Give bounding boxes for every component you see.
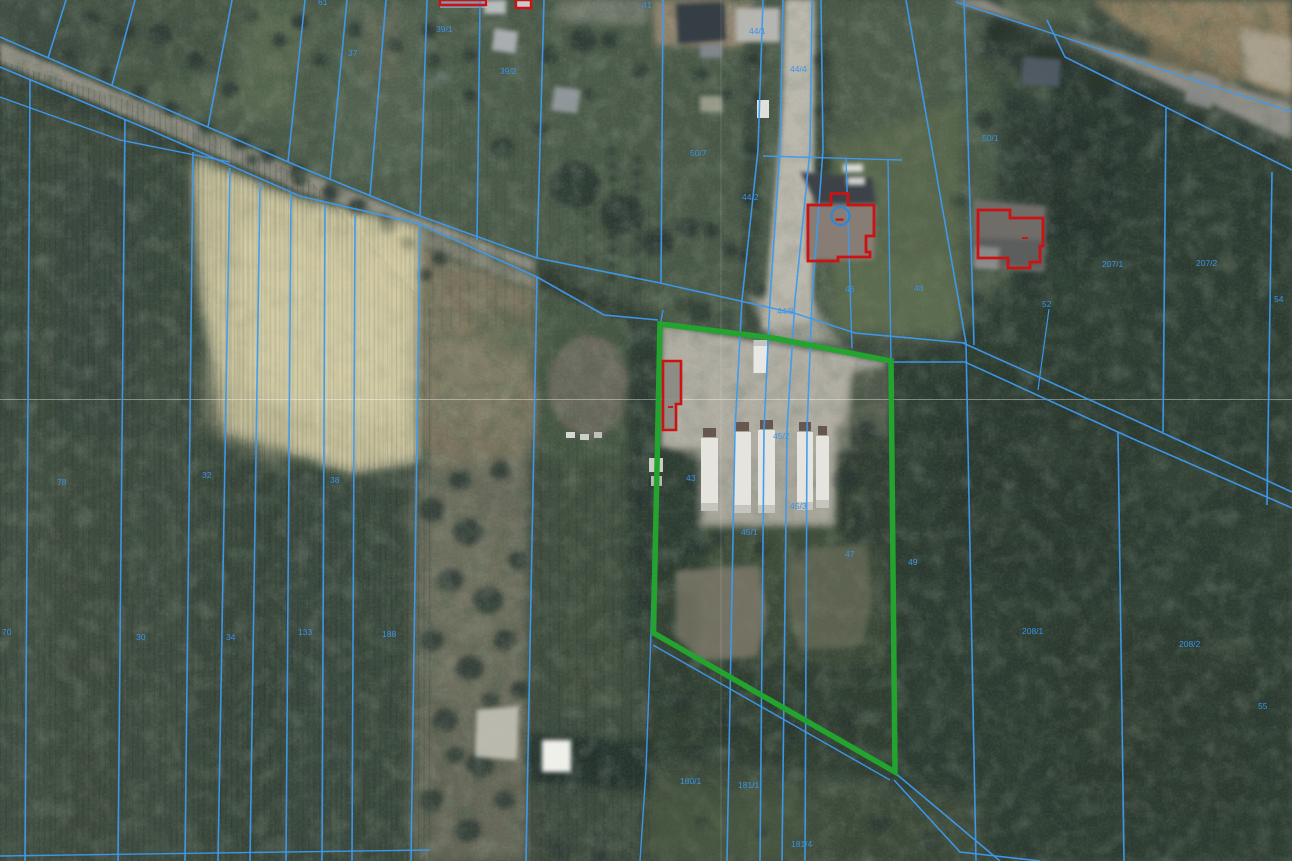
svg-text:78: 78 [57,477,67,487]
svg-text:44/1: 44/1 [749,26,766,36]
svg-text:133: 133 [298,627,312,637]
svg-text:61: 61 [318,0,328,7]
svg-text:208/1: 208/1 [1022,626,1044,636]
svg-text:207/1: 207/1 [1102,259,1124,269]
svg-text:180/1: 180/1 [680,776,702,786]
svg-text:207/2: 207/2 [1196,258,1218,268]
svg-text:44/4: 44/4 [790,64,807,74]
svg-text:45/1: 45/1 [741,527,758,537]
svg-text:44/2: 44/2 [742,192,759,202]
svg-text:47: 47 [845,549,855,559]
svg-text:38: 38 [330,475,340,485]
svg-text:41: 41 [642,0,652,10]
svg-text:50/7: 50/7 [690,148,707,158]
svg-text:45/3: 45/3 [790,501,807,511]
svg-text:188: 188 [382,629,396,639]
svg-text:34: 34 [226,632,236,642]
svg-text:208/2: 208/2 [1179,639,1201,649]
svg-text:44/8: 44/8 [777,306,794,316]
svg-text:55: 55 [1258,701,1268,711]
svg-text:181/4: 181/4 [791,839,813,849]
svg-text:49: 49 [908,557,918,567]
svg-text:39/1: 39/1 [436,24,453,34]
svg-text:70: 70 [2,627,12,637]
svg-text:39/2: 39/2 [500,66,517,76]
svg-text:45/2: 45/2 [773,431,790,441]
svg-text:32: 32 [202,470,212,480]
svg-text:48: 48 [914,283,924,293]
svg-text:50/1: 50/1 [982,133,999,143]
svg-text:46: 46 [845,284,855,294]
svg-text:43: 43 [686,473,696,483]
svg-text:30: 30 [136,632,146,642]
svg-text:52: 52 [1042,299,1052,309]
svg-text:54: 54 [1274,294,1284,304]
svg-text:181/1: 181/1 [738,780,760,790]
svg-text:37: 37 [348,48,358,58]
